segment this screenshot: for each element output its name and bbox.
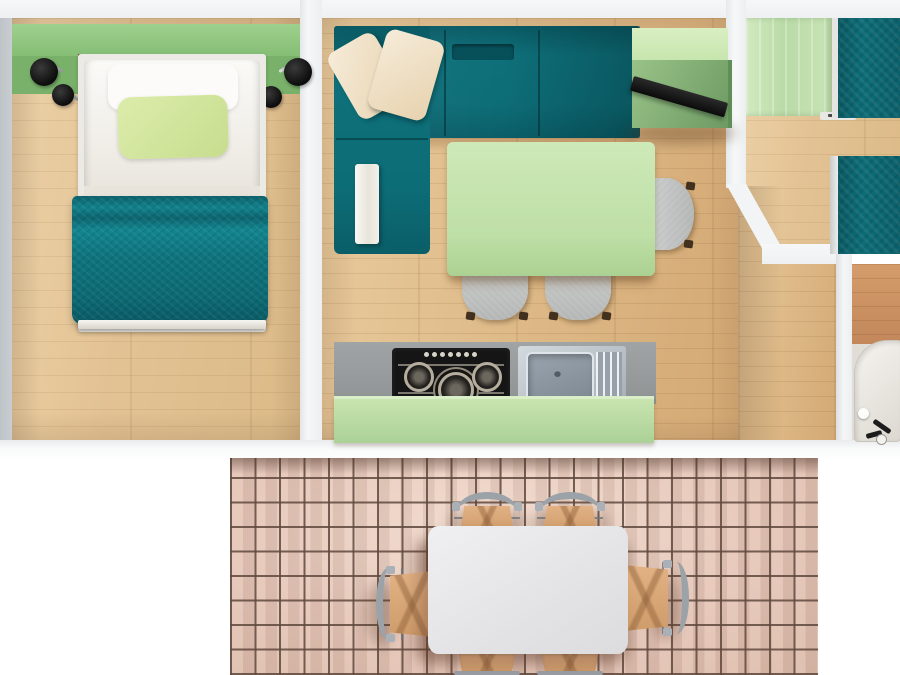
chair-back-frame-icon <box>664 562 689 634</box>
green-pillow <box>117 95 229 160</box>
green-dining-table <box>447 142 655 276</box>
sofa-cushion-seam <box>336 138 428 140</box>
wall-lamp-icon <box>30 58 58 86</box>
patio-chair-bottom-2 <box>535 644 605 675</box>
teal-quilt <box>72 196 268 324</box>
lamp-arm-icon <box>67 90 79 102</box>
bedroom-right <box>0 0 900 675</box>
headboard-shelf-top <box>12 24 300 58</box>
drainboard <box>596 352 622 398</box>
wall-bedroom-right-bottom <box>762 244 838 264</box>
countertop <box>334 342 656 404</box>
shower-drain-icon <box>858 408 869 419</box>
shower-tray <box>854 340 900 442</box>
corner-sofa-back-section <box>334 26 640 138</box>
sheet-fold <box>84 186 260 198</box>
sofa-back-pocket <box>452 44 514 60</box>
patio-chair-left <box>374 566 434 642</box>
steel-sink-unit <box>518 346 626 404</box>
gray-chair-right <box>648 178 694 250</box>
green-desk-top <box>632 28 728 62</box>
bed-sheet <box>84 60 260 196</box>
bed-end-rail <box>78 320 266 329</box>
wicker-seat <box>624 565 668 631</box>
wall-bottom-outer <box>0 440 900 460</box>
chair-shadow <box>366 580 396 646</box>
lamp-arm-icon <box>278 62 293 73</box>
green-desk-body <box>632 60 732 128</box>
hob-knob-icon <box>440 352 445 357</box>
chair-back-frame-icon <box>537 671 603 675</box>
headboard-shelf-left <box>12 56 78 94</box>
frame-cap <box>386 566 395 574</box>
cream-cushion-1 <box>325 30 410 123</box>
hob-grate-rail <box>398 392 504 394</box>
patio-chair-bottom-1 <box>452 644 522 675</box>
wardrobe-ledge <box>820 112 856 120</box>
frame-cap <box>663 560 672 568</box>
wall-left-outer <box>0 18 12 446</box>
chair-leg <box>685 181 695 190</box>
frame-cap <box>452 502 460 511</box>
chair-leg <box>548 311 558 320</box>
frame-cap <box>514 502 522 511</box>
wicker-seat <box>390 571 434 637</box>
wicker-seat <box>460 506 514 532</box>
living-room <box>0 0 900 675</box>
terrace <box>0 0 900 675</box>
bathroom-floor <box>852 264 900 444</box>
chair-back-frame-icon <box>537 492 603 517</box>
kitchen <box>0 0 900 675</box>
sofa-cushion-seam <box>538 30 540 136</box>
chair-leg <box>683 239 693 248</box>
wicker-seat <box>543 506 597 532</box>
sink-drain-icon <box>554 370 561 377</box>
green-wardrobe <box>746 18 832 116</box>
wall-lamp-icon <box>52 84 74 106</box>
wardrobe-handle-icon <box>828 114 844 117</box>
wall-living-bedroom-right <box>726 0 746 188</box>
lamp-arm-icon <box>48 62 63 73</box>
wall-lamp-icon <box>260 86 282 108</box>
gas-hob <box>392 348 510 402</box>
sofa-shading <box>334 26 640 138</box>
frame-cap <box>597 502 605 511</box>
hallway-floor <box>738 186 836 442</box>
bedroom-left-floor <box>12 18 300 442</box>
burner-left <box>404 362 434 392</box>
twin-bed-bottom <box>838 156 900 254</box>
chair-leg <box>465 311 475 320</box>
table-shadow <box>452 272 652 284</box>
wall-top <box>0 0 900 18</box>
patio-chair-right <box>624 560 684 636</box>
desk-shadow <box>628 122 736 144</box>
walls <box>0 0 900 675</box>
folded-throw <box>355 164 379 244</box>
chair-shadow <box>531 510 609 536</box>
floor-plan-canvas <box>0 0 900 675</box>
burner-right <box>472 362 502 392</box>
twin-bed-top <box>838 18 900 118</box>
bedroom-right-floor <box>746 18 900 250</box>
white-pillow <box>108 64 238 110</box>
hob-knob-icon <box>464 352 469 357</box>
bedroom-left-shading <box>12 18 300 442</box>
sofa-cushion-seam <box>444 30 446 136</box>
wall-diagonal <box>726 184 782 248</box>
single-bed-frame <box>78 54 266 332</box>
wall-lamp-icon <box>284 58 312 86</box>
headboard-shelf-right <box>262 56 300 94</box>
wicker-seat <box>541 650 599 675</box>
living-room-shading <box>322 18 740 442</box>
chair-back-frame-icon <box>454 671 520 675</box>
wall-bathroom-left <box>836 244 852 460</box>
hob-knob-icon <box>432 352 437 357</box>
hallway-shading <box>738 186 836 442</box>
hob-grate-rail <box>398 364 504 366</box>
terrace-top-shadow <box>230 458 818 474</box>
gray-chair-bottom-2 <box>545 262 611 320</box>
patio-chair-top-2 <box>535 488 605 532</box>
cream-cushion-2 <box>366 27 446 122</box>
kitchen-cabinet-front <box>334 396 654 443</box>
bathroom-wood-counter <box>852 264 900 344</box>
chair-back-frame-icon <box>454 492 520 517</box>
bedroom-left <box>0 0 900 675</box>
gray-chair-bottom-1 <box>462 262 528 320</box>
hob-knob-icon <box>448 352 453 357</box>
sofa-shadow <box>338 132 636 146</box>
patio-chair-top-1 <box>452 488 522 532</box>
faucet-icon <box>872 419 891 435</box>
patio-table-shadow <box>416 542 630 660</box>
twin-bed-top-frame <box>832 18 838 118</box>
hob-knob-icon <box>456 352 461 357</box>
frame-cap <box>535 502 543 511</box>
sink-basin <box>526 352 594 402</box>
corner-sofa-chaise <box>334 26 430 254</box>
living-room-floor <box>322 18 740 442</box>
burner-center <box>438 372 474 408</box>
laptop-icon <box>630 76 728 117</box>
twin-bed-bottom-frame <box>830 156 838 254</box>
chair-shadow <box>448 510 526 536</box>
bathroom <box>0 0 900 675</box>
chair-back-frame-icon <box>376 568 401 640</box>
faucet-icon <box>866 430 883 439</box>
tile-floor <box>230 458 818 675</box>
frame-cap <box>386 634 395 642</box>
chair-leg <box>518 311 528 320</box>
hob-knob-icon <box>424 352 429 357</box>
chair-shadow <box>650 574 680 640</box>
lamp-arm-icon <box>263 90 275 102</box>
wall-bedroom-living <box>300 0 322 442</box>
faucet-knob-icon <box>876 434 887 445</box>
chair-leg <box>601 311 611 320</box>
wicker-seat <box>458 650 516 675</box>
headboard <box>78 54 262 66</box>
frame-cap <box>663 628 672 636</box>
hob-knob-icon <box>472 352 477 357</box>
floors <box>0 0 900 675</box>
white-patio-table <box>428 526 628 654</box>
